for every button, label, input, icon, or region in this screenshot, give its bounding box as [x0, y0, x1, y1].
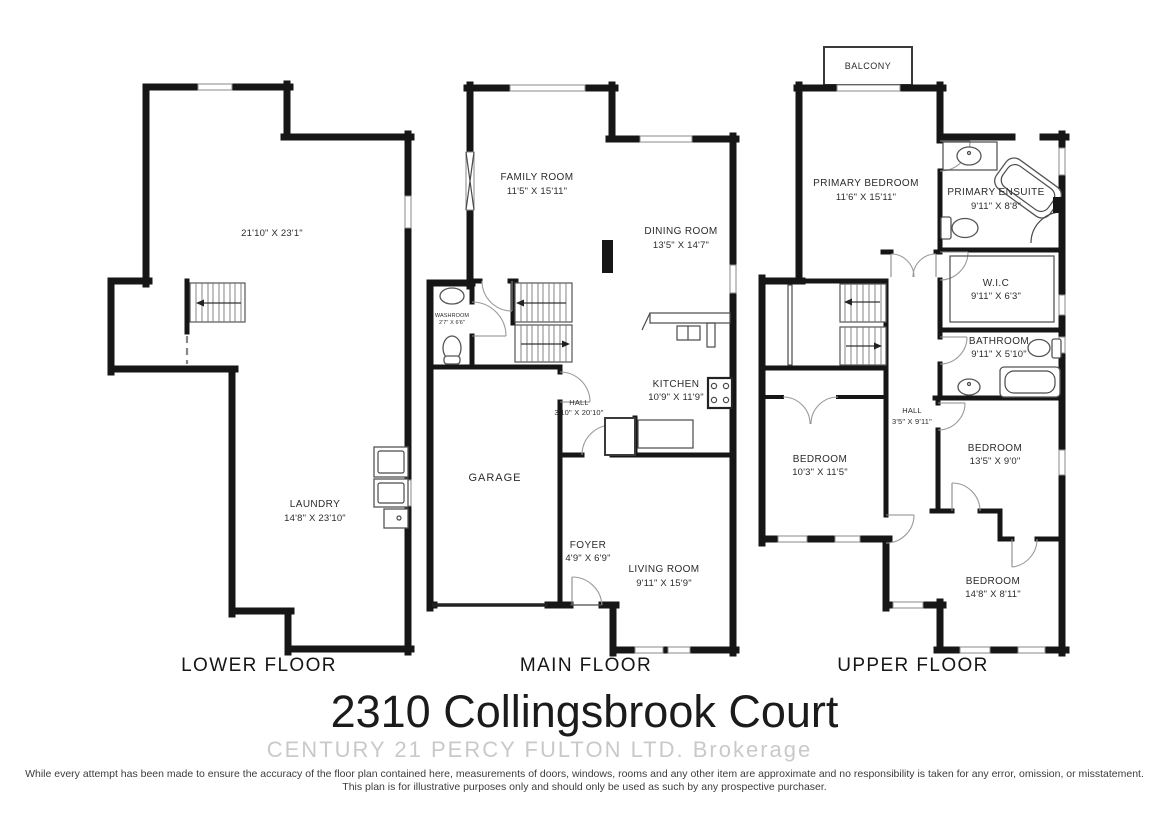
main-staircase: [515, 283, 572, 362]
bathroom-fixtures: [958, 339, 1061, 397]
living-room-dims-label: 9'11" X 15'9": [636, 578, 692, 589]
main-hall-name-label: HALL: [569, 398, 589, 407]
garage-name-label: GARAGE: [468, 472, 521, 484]
bathroom-name-label: BATHROOM: [969, 336, 1029, 347]
bedroom3-dims-label: 14'8" X 8'11": [965, 589, 1021, 600]
recroom-dims-label: 21'10" X 23'1": [241, 228, 303, 239]
kitchen-dims-label: 10'9" X 11'9": [648, 392, 704, 403]
bedroom2-name-label: BEDROOM: [968, 443, 1022, 454]
page-title: 2310 Collingsbrook Court: [0, 686, 1169, 738]
bedroom1-name-label: BEDROOM: [793, 454, 847, 465]
wic-dims-label: 9'11" X 6'3": [971, 291, 1021, 302]
upper-staircase: [788, 284, 886, 365]
primary-ensuite-dims-label: 9'11" X 8'8": [971, 201, 1021, 212]
lower-exterior-walls: [111, 84, 411, 652]
washroom-fixtures: [440, 288, 464, 364]
lower-floor-title: LOWER FLOOR: [181, 655, 337, 676]
dining-room-name-label: DINING ROOM: [644, 226, 717, 237]
lower-floor-plan: 21'10" X 23'1" LAUNDRY 14'8" X 23'10" LO…: [111, 84, 411, 676]
primary-bedroom-dims-label: 11'6" X 15'11": [836, 192, 896, 203]
family-room-name-label: FAMILY ROOM: [501, 172, 574, 183]
bedroom3-name-label: BEDROOM: [966, 576, 1020, 587]
bedroom1-dims-label: 10'3" X 11'5": [792, 467, 848, 478]
closet-slider: [788, 285, 792, 365]
laundry-name-label: LAUNDRY: [290, 499, 340, 510]
family-room-dims-label: 11'5" X 15'11": [507, 186, 567, 197]
laundry-dims-label: 14'8" X 23'10": [284, 513, 346, 524]
foyer-name-label: FOYER: [570, 540, 606, 551]
primary-bedroom-name-label: PRIMARY BEDROOM: [813, 178, 919, 189]
washroom-dims-label: 2'7" X 6'6": [439, 320, 465, 326]
main-hall-dims-label: 3'10" X 20'10": [554, 408, 603, 417]
laundry-appliances: [374, 447, 408, 528]
disclaimer-line2: This plan is for illustrative purposes o…: [0, 781, 1169, 794]
bedroom2-dims-label: 13'5" X 9'0": [970, 456, 1021, 467]
disclaimer: While every attempt has been made to ens…: [0, 768, 1169, 793]
wic-shelving: [950, 256, 1054, 322]
upper-floor-title: UPPER FLOOR: [837, 655, 989, 676]
balcony-name-label: BALCONY: [845, 61, 892, 71]
upper-hall-dims-label: 3'5" X 9'11": [892, 417, 932, 426]
dining-room-dims-label: 13'5" X 14'7": [653, 240, 709, 251]
floorplan-page: 21'10" X 23'1" LAUNDRY 14'8" X 23'10" LO…: [0, 0, 1169, 826]
washroom-name-label: WASHROOM: [435, 313, 470, 319]
fireplace-stub: [602, 240, 613, 273]
primary-ensuite-name-label: PRIMARY ENSUITE: [947, 187, 1044, 198]
disclaimer-line1: While every attempt has been made to ens…: [0, 768, 1169, 781]
foyer-dims-label: 4'9" X 6'9": [565, 553, 610, 564]
upper-hall-name-label: HALL: [902, 406, 922, 415]
main-floor-title: MAIN FLOOR: [520, 655, 652, 676]
bathroom-dims-label: 9'11" X 5'10": [971, 349, 1027, 360]
main-floor-plan: FAMILY ROOM 11'5" X 15'11" DINING ROOM 1…: [430, 85, 736, 676]
upper-floor-plan: BALCONY PRIMARY BEDROOM 11'6" X 15'11" P…: [762, 47, 1066, 676]
brokerage-watermark: CENTURY 21 PERCY FULTON LTD. Brokerage: [0, 737, 1124, 763]
kitchen-name-label: KITCHEN: [653, 379, 700, 390]
living-room-name-label: LIVING ROOM: [628, 564, 699, 575]
wic-name-label: W.I.C: [983, 278, 1009, 289]
lower-staircase: [190, 283, 245, 322]
